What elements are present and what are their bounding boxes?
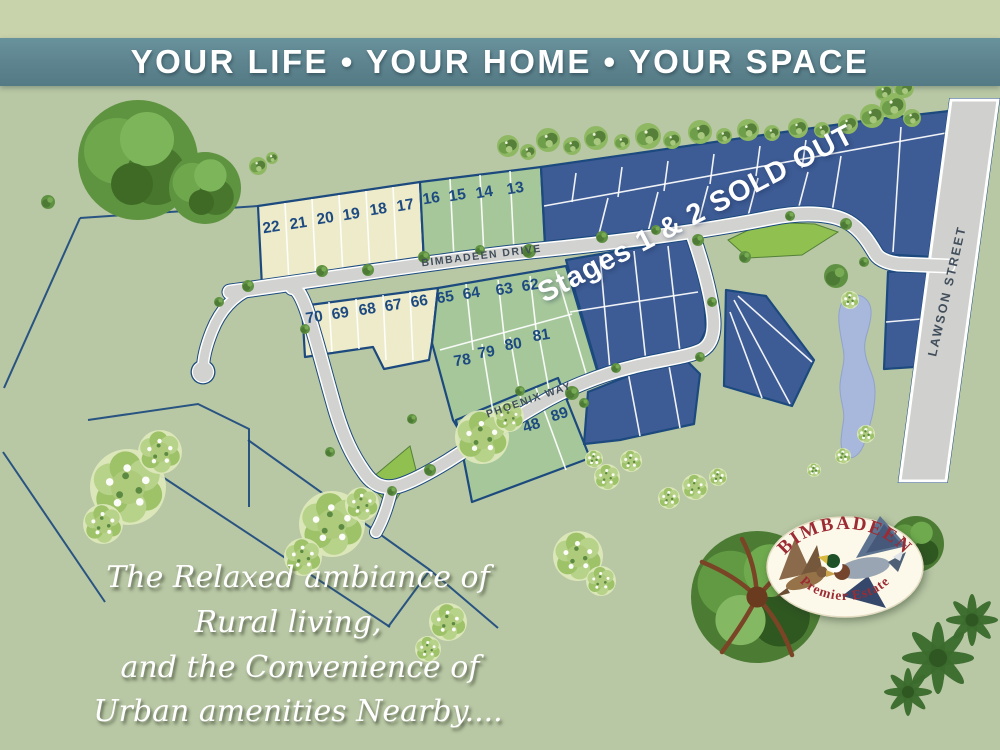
tree-icon xyxy=(101,512,105,516)
tree-icon xyxy=(352,500,355,503)
tree-icon xyxy=(515,413,518,416)
tree-icon xyxy=(100,516,104,520)
tree-icon xyxy=(122,472,129,479)
tree-icon xyxy=(392,488,396,492)
tree-icon xyxy=(620,138,622,140)
tree-icon xyxy=(844,297,847,300)
lot-number-14: 14 xyxy=(474,183,494,203)
tree-icon xyxy=(116,491,123,498)
tree-icon xyxy=(693,479,696,482)
tree-icon xyxy=(445,615,448,618)
lot-number-15: 15 xyxy=(447,186,467,206)
lot-number-18: 18 xyxy=(368,200,388,220)
estate-flyer: YOUR LIFE • YOUR HOME • YOUR SPACE 22212… xyxy=(0,0,1000,750)
top-strip xyxy=(0,0,1000,38)
tree-icon xyxy=(604,585,607,588)
lot-number-67: 67 xyxy=(383,296,403,315)
tree-icon xyxy=(851,302,854,305)
tree-icon xyxy=(612,473,615,476)
tree-icon xyxy=(848,296,850,298)
tree-icon xyxy=(881,88,883,90)
tree-icon xyxy=(338,524,344,530)
lot-number-81: 81 xyxy=(531,326,551,346)
tree-icon xyxy=(107,530,111,534)
tree-icon xyxy=(466,431,471,436)
tree-icon xyxy=(487,437,492,442)
tree-icon xyxy=(722,132,724,134)
tree-icon xyxy=(563,550,568,555)
tree-icon xyxy=(328,504,335,511)
tree-icon xyxy=(902,686,914,698)
tree-icon xyxy=(339,534,346,541)
tree-icon xyxy=(698,132,705,139)
tree-icon xyxy=(746,586,767,607)
tree-icon xyxy=(442,624,445,627)
tree-icon xyxy=(255,162,257,164)
tree-icon xyxy=(602,481,605,484)
tree-icon xyxy=(700,354,704,358)
tree-icon xyxy=(597,456,600,459)
tree-icon xyxy=(110,518,114,522)
tree-icon xyxy=(845,220,850,225)
lot-number-70: 70 xyxy=(304,308,324,327)
tree-icon xyxy=(889,101,892,104)
tree-icon xyxy=(838,453,841,456)
boundary-line xyxy=(4,218,80,388)
tree-icon xyxy=(437,618,441,622)
lot-number-20: 20 xyxy=(315,209,335,228)
tree-icon xyxy=(610,481,613,484)
tree-icon xyxy=(111,163,153,205)
tree-icon xyxy=(47,197,53,203)
tree-icon xyxy=(746,130,753,137)
tree-icon xyxy=(910,522,932,544)
tree-icon xyxy=(152,459,156,463)
tree-icon xyxy=(503,422,506,425)
tree-icon xyxy=(863,435,865,437)
tree-icon xyxy=(595,459,597,461)
tree-icon xyxy=(966,614,979,627)
tree-icon xyxy=(164,452,168,456)
tree-icon xyxy=(95,530,99,534)
tree-icon xyxy=(671,498,673,500)
tree-icon xyxy=(570,559,575,564)
tagline-line-4: Urban amenities Nearby.... xyxy=(93,694,502,729)
tree-icon xyxy=(629,457,631,459)
tree-icon xyxy=(645,136,653,144)
tree-icon xyxy=(635,458,638,461)
tree-icon xyxy=(864,430,866,432)
tree-icon xyxy=(412,416,416,420)
tree-icon xyxy=(902,88,908,94)
tree-icon xyxy=(107,524,111,528)
tree-icon xyxy=(795,124,797,126)
tree-icon xyxy=(882,92,887,97)
tree-icon xyxy=(569,564,574,569)
tree-icon xyxy=(860,431,863,434)
tree-icon xyxy=(478,427,483,432)
tree-icon xyxy=(330,449,334,453)
tree-icon xyxy=(599,572,602,575)
tree-icon xyxy=(142,477,150,485)
tree-icon xyxy=(357,506,360,509)
tree-icon xyxy=(815,469,817,471)
tree-icon xyxy=(360,494,363,497)
tree-icon xyxy=(584,400,588,404)
tree-icon xyxy=(292,553,296,557)
tree-icon xyxy=(698,487,700,489)
tree-icon xyxy=(300,550,303,553)
tree-icon xyxy=(698,491,701,494)
tree-icon xyxy=(426,641,429,644)
tree-icon xyxy=(867,434,869,436)
tree-icon xyxy=(322,528,328,534)
tree-icon xyxy=(664,501,667,504)
tree-icon xyxy=(157,439,161,443)
tree-icon xyxy=(153,454,157,458)
lot-number-63: 63 xyxy=(494,280,514,300)
lot-number-66: 66 xyxy=(409,292,429,312)
tree-icon xyxy=(721,474,724,477)
tree-icon xyxy=(624,458,627,461)
tree-icon xyxy=(629,454,632,457)
tree-icon xyxy=(844,456,846,458)
tree-icon xyxy=(587,549,592,554)
tree-icon xyxy=(574,546,579,551)
tree-icon xyxy=(715,478,717,480)
tree-icon xyxy=(472,446,477,451)
tree-icon xyxy=(452,628,456,632)
tagline-line-2: Rural living, xyxy=(193,605,381,640)
tree-icon xyxy=(320,534,327,541)
tree-icon xyxy=(605,469,608,472)
tree-icon xyxy=(433,645,436,648)
tree-icon xyxy=(851,300,853,302)
tree-icon xyxy=(592,577,595,580)
tree-icon xyxy=(506,146,513,153)
tree-icon xyxy=(189,190,214,215)
tree-icon xyxy=(595,461,598,464)
tree-icon xyxy=(474,440,479,445)
tree-icon xyxy=(870,116,877,123)
tree-icon xyxy=(441,628,445,632)
tree-icon xyxy=(770,133,775,138)
tree-icon xyxy=(504,419,507,422)
tree-icon xyxy=(596,583,599,586)
lot-number-68: 68 xyxy=(357,300,377,320)
tree-icon xyxy=(691,488,693,490)
tree-icon xyxy=(835,268,845,278)
lot-number-21: 21 xyxy=(288,214,308,234)
tree-icon xyxy=(367,266,372,271)
tree-icon xyxy=(545,135,548,138)
tree-icon xyxy=(847,301,849,303)
lot-number-78: 78 xyxy=(452,351,472,371)
lot-number-79: 79 xyxy=(476,343,496,363)
tree-icon xyxy=(687,484,690,487)
tree-icon xyxy=(626,464,629,467)
tree-icon xyxy=(790,213,794,217)
tree-icon xyxy=(812,467,814,469)
tree-icon xyxy=(120,112,174,166)
tree-icon xyxy=(745,125,748,128)
tree-icon xyxy=(929,649,947,667)
tree-icon xyxy=(301,546,305,550)
lot-number-80: 80 xyxy=(503,335,523,354)
tree-icon xyxy=(670,140,675,145)
tree-icon xyxy=(594,138,601,145)
tree-icon xyxy=(327,511,333,517)
tree-icon xyxy=(344,515,351,522)
tree-icon xyxy=(867,436,870,439)
tree-icon xyxy=(697,127,700,130)
tree-icon xyxy=(194,159,226,191)
tree-icon xyxy=(359,497,362,500)
tree-icon xyxy=(693,482,695,484)
lot-number-22: 22 xyxy=(261,218,281,237)
tree-icon xyxy=(455,617,459,621)
tree-icon xyxy=(168,446,172,450)
tree-icon xyxy=(869,431,872,434)
tree-icon xyxy=(546,140,553,147)
culdesac-bulb xyxy=(193,362,213,382)
tree-icon xyxy=(570,146,575,151)
tree-icon xyxy=(700,483,703,486)
tree-icon xyxy=(667,491,670,494)
tree-icon xyxy=(526,152,531,157)
tree-icon xyxy=(526,148,528,150)
lot-number-64: 64 xyxy=(461,284,481,304)
tree-icon xyxy=(716,473,718,475)
tree-icon xyxy=(135,487,142,494)
tree-icon xyxy=(603,478,605,480)
tree-icon xyxy=(321,267,326,272)
tree-icon xyxy=(601,233,606,238)
tree-icon xyxy=(665,499,667,501)
lot-number-16: 16 xyxy=(421,189,441,209)
tree-icon xyxy=(520,388,524,392)
tree-icon xyxy=(147,447,151,451)
estate-map: 2221201918171615141370696867666564636278… xyxy=(0,86,1000,750)
tree-icon xyxy=(356,509,359,512)
tree-icon xyxy=(271,158,275,162)
tree-icon xyxy=(310,552,314,556)
tree-icon xyxy=(247,282,252,287)
tree-icon xyxy=(796,128,802,134)
tree-icon xyxy=(592,455,594,457)
tree-icon xyxy=(429,466,434,471)
tree-icon xyxy=(365,504,368,507)
tree-icon xyxy=(667,494,669,496)
tree-icon xyxy=(595,586,598,589)
tree-icon xyxy=(722,136,727,141)
tree-icon xyxy=(869,111,872,114)
tagline-line-1: The Relaxed ambiance of xyxy=(106,560,494,595)
tree-icon xyxy=(488,445,493,450)
tree-icon xyxy=(840,456,842,458)
tree-icon xyxy=(770,129,772,131)
tree-icon xyxy=(744,253,749,258)
tree-icon xyxy=(492,430,497,435)
tree-icon xyxy=(270,155,272,157)
tree-icon xyxy=(605,472,607,474)
tree-icon xyxy=(452,622,455,625)
tree-icon xyxy=(864,259,868,263)
tree-icon xyxy=(910,118,915,123)
tree-icon xyxy=(841,452,843,454)
tree-icon xyxy=(844,458,847,461)
tree-icon xyxy=(479,421,484,426)
tree-icon xyxy=(123,464,131,472)
lot-number-13: 13 xyxy=(505,179,525,199)
tree-icon xyxy=(909,114,911,116)
tree-icon xyxy=(620,142,625,147)
tagline-line-3: and the Convenience of xyxy=(121,650,485,685)
tree-icon xyxy=(616,365,620,369)
tree-icon xyxy=(633,461,635,463)
lot-number-19: 19 xyxy=(341,205,361,225)
tree-icon xyxy=(313,516,320,523)
tree-icon xyxy=(593,133,596,136)
tree-icon xyxy=(583,563,588,568)
tree-icon xyxy=(712,474,715,477)
tree-icon xyxy=(512,421,515,424)
tree-icon xyxy=(106,478,114,486)
tree-icon xyxy=(157,444,161,448)
tree-icon xyxy=(644,131,647,134)
tree-icon xyxy=(690,491,693,494)
tree-icon xyxy=(219,299,223,303)
tree-icon xyxy=(673,495,676,498)
tree-icon xyxy=(853,297,856,300)
tree-icon xyxy=(719,477,721,479)
tree-icon xyxy=(820,126,822,128)
tree-icon xyxy=(366,509,369,512)
tree-icon xyxy=(697,236,702,241)
banner-text: YOUR LIFE • YOUR HOME • YOUR SPACE xyxy=(131,43,870,81)
tree-icon xyxy=(583,556,588,561)
tree-icon xyxy=(712,299,716,303)
tree-icon xyxy=(633,464,636,467)
tree-icon xyxy=(669,136,671,138)
lot-number-17: 17 xyxy=(395,196,415,215)
tree-icon xyxy=(505,141,508,144)
tree-icon xyxy=(165,458,169,462)
lot-number-65: 65 xyxy=(435,288,455,308)
tree-icon xyxy=(662,495,665,498)
tree-icon xyxy=(256,166,261,171)
tree-icon xyxy=(604,581,607,584)
tree-icon xyxy=(446,611,450,615)
tree-icon xyxy=(569,142,571,144)
banner: YOUR LIFE • YOUR HOME • YOUR SPACE xyxy=(0,38,1000,86)
tree-icon xyxy=(610,477,612,479)
tree-icon xyxy=(426,644,428,646)
tree-icon xyxy=(97,526,101,530)
tree-icon xyxy=(91,519,95,523)
tree-icon xyxy=(114,499,122,507)
tree-icon xyxy=(136,498,144,506)
tree-icon xyxy=(591,460,593,462)
tree-icon xyxy=(671,501,674,504)
tree-icon xyxy=(368,499,371,502)
tree-icon xyxy=(607,577,610,580)
tree-icon xyxy=(811,470,813,472)
tree-icon xyxy=(420,646,423,649)
tree-icon xyxy=(719,479,722,482)
tree-icon xyxy=(809,468,812,471)
lot-number-69: 69 xyxy=(330,304,350,324)
tree-icon xyxy=(627,462,629,464)
tree-icon xyxy=(599,575,602,578)
tree-icon xyxy=(512,417,515,420)
tree-icon xyxy=(588,456,591,459)
tree-icon xyxy=(575,541,580,546)
tree-icon xyxy=(890,106,898,114)
tree-icon xyxy=(599,474,602,477)
